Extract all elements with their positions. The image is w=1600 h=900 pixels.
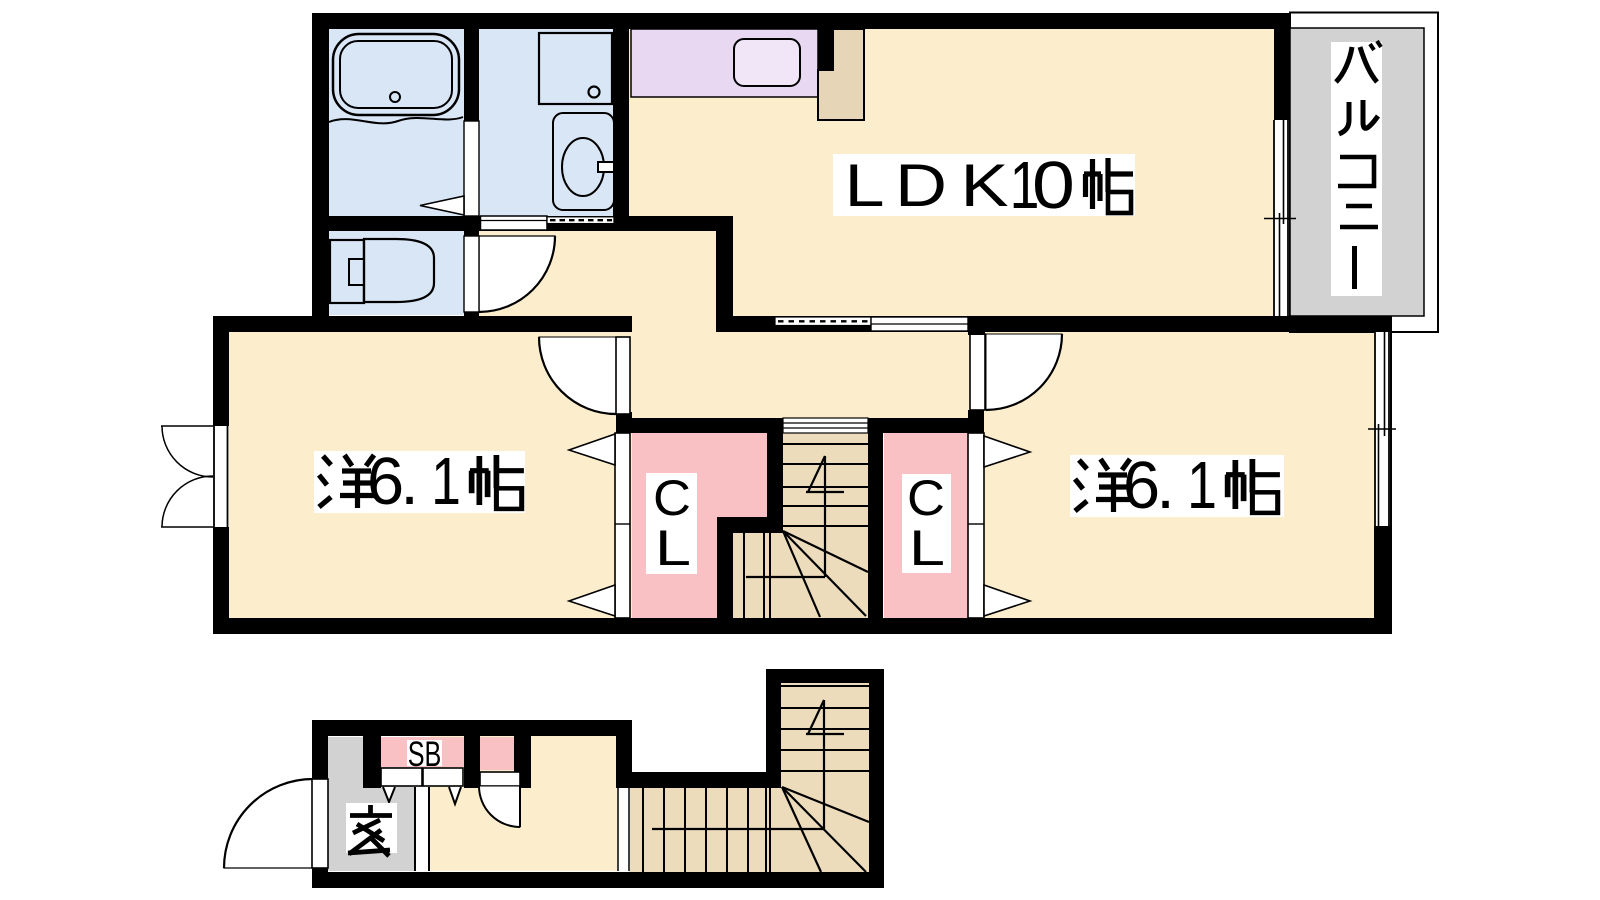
svg-text:.: . bbox=[1156, 448, 1175, 523]
svg-text:1: 1 bbox=[431, 443, 461, 518]
svg-text:1: 1 bbox=[1187, 447, 1217, 522]
svg-text:C: C bbox=[653, 470, 691, 526]
svg-text:0: 0 bbox=[1032, 149, 1075, 223]
svg-text:6: 6 bbox=[367, 444, 404, 519]
svg-text:L: L bbox=[655, 521, 691, 576]
svg-text:.: . bbox=[400, 444, 419, 519]
svg-text:C: C bbox=[907, 470, 945, 526]
svg-text:6: 6 bbox=[1123, 448, 1160, 523]
svg-text:L: L bbox=[909, 521, 945, 576]
svg-text:K: K bbox=[960, 153, 1008, 220]
svg-text:SB: SB bbox=[408, 735, 442, 774]
svg-text:D: D bbox=[895, 153, 947, 220]
svg-text:L: L bbox=[844, 153, 884, 220]
